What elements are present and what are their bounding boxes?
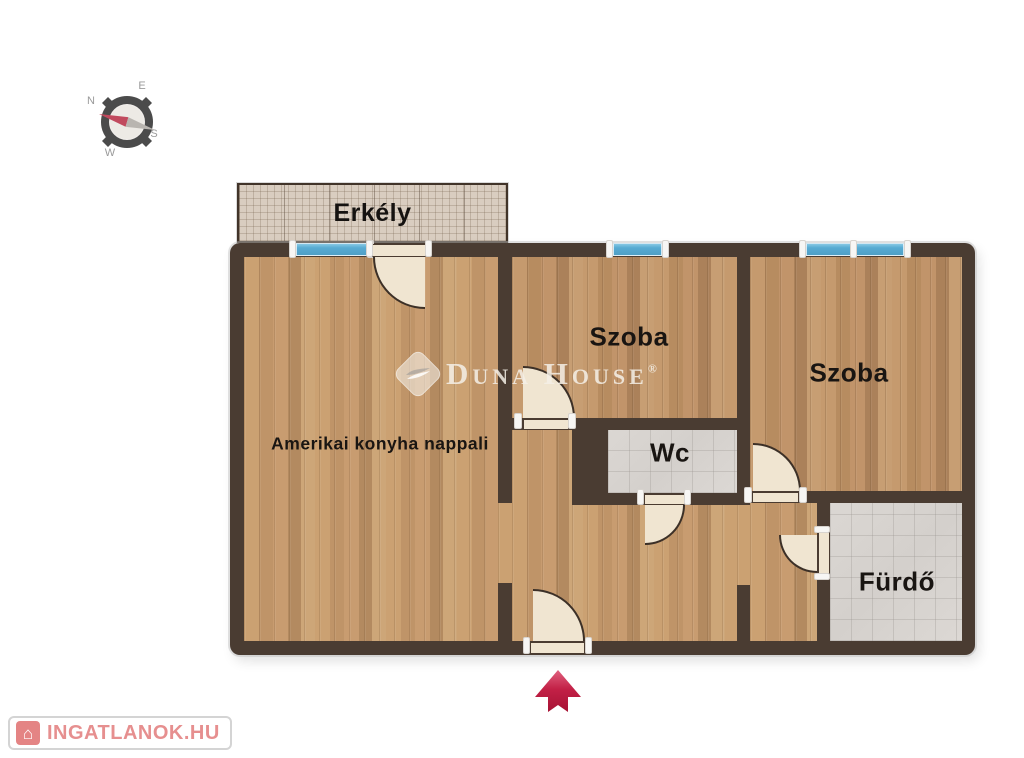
room-label-bedroom1: Szoba (589, 322, 668, 353)
door-bedroom1-jamb-right (568, 413, 576, 429)
door-leaf-bathroom (818, 532, 830, 574)
vestibule-floor (750, 503, 817, 641)
balcony-label: Erkély (333, 199, 411, 228)
window-bedroom2-mullion (850, 240, 857, 258)
site-logo: ⌂ INGATLANOK.HU (8, 716, 232, 750)
door-bathroom-jamb-top (814, 526, 830, 533)
window-bedroom1-jamb-left (606, 240, 613, 258)
balcony: Erkély (237, 183, 508, 243)
window-living (296, 243, 367, 256)
window-bedroom1 (613, 243, 662, 256)
opening-hall-vestibule (737, 505, 750, 585)
window-living-jamb-left (289, 240, 296, 258)
door-bedroom2-jamb-left (744, 487, 752, 503)
door-wc-jamb-left (637, 489, 644, 505)
compass-letter-e: E (138, 80, 145, 92)
room-label-bathroom: Fürdő (859, 567, 935, 598)
floor-plan: N E S W Erkély (0, 0, 1024, 758)
door-leaf-bedroom2 (752, 492, 799, 503)
site-logo-text: INGATLANOK.HU (47, 722, 220, 745)
door-bedroom2-jamb-right (799, 487, 807, 503)
door-balcony-jamb-left (366, 240, 373, 257)
entrance-arrow-icon (535, 670, 581, 713)
door-balcony-jamb-right (425, 240, 432, 257)
door-leaf-entrance (530, 642, 585, 654)
door-leaf-balcony (372, 244, 426, 257)
door-entrance-jamb-left (523, 637, 530, 654)
room-label-living: Amerikai konyha nappali (271, 434, 489, 455)
compass-letter-w: W (105, 147, 116, 159)
room-label-bedroom2: Szoba (809, 358, 888, 389)
window-bedroom2-jamb-left (799, 240, 806, 258)
opening-living-hall (498, 503, 512, 583)
door-wc-jamb-right (684, 489, 691, 505)
door-leaf-wc (644, 494, 685, 505)
room-label-wc: Wc (650, 438, 690, 469)
door-entrance-jamb-right (585, 637, 592, 654)
window-bedroom1-jamb-right (662, 240, 669, 258)
door-bedroom1-jamb-left (514, 413, 522, 429)
window-bedroom2-jamb-right (904, 240, 911, 258)
house-icon: ⌂ (16, 721, 40, 745)
door-leaf-bedroom1 (523, 419, 569, 430)
compass-icon: N E S W (77, 72, 177, 172)
compass-letter-n: N (87, 95, 95, 107)
door-bathroom-jamb-bottom (814, 573, 830, 580)
wc-wall-left (595, 418, 608, 505)
hall-floor-upper (512, 430, 572, 505)
compass-letter-s: S (150, 128, 157, 140)
